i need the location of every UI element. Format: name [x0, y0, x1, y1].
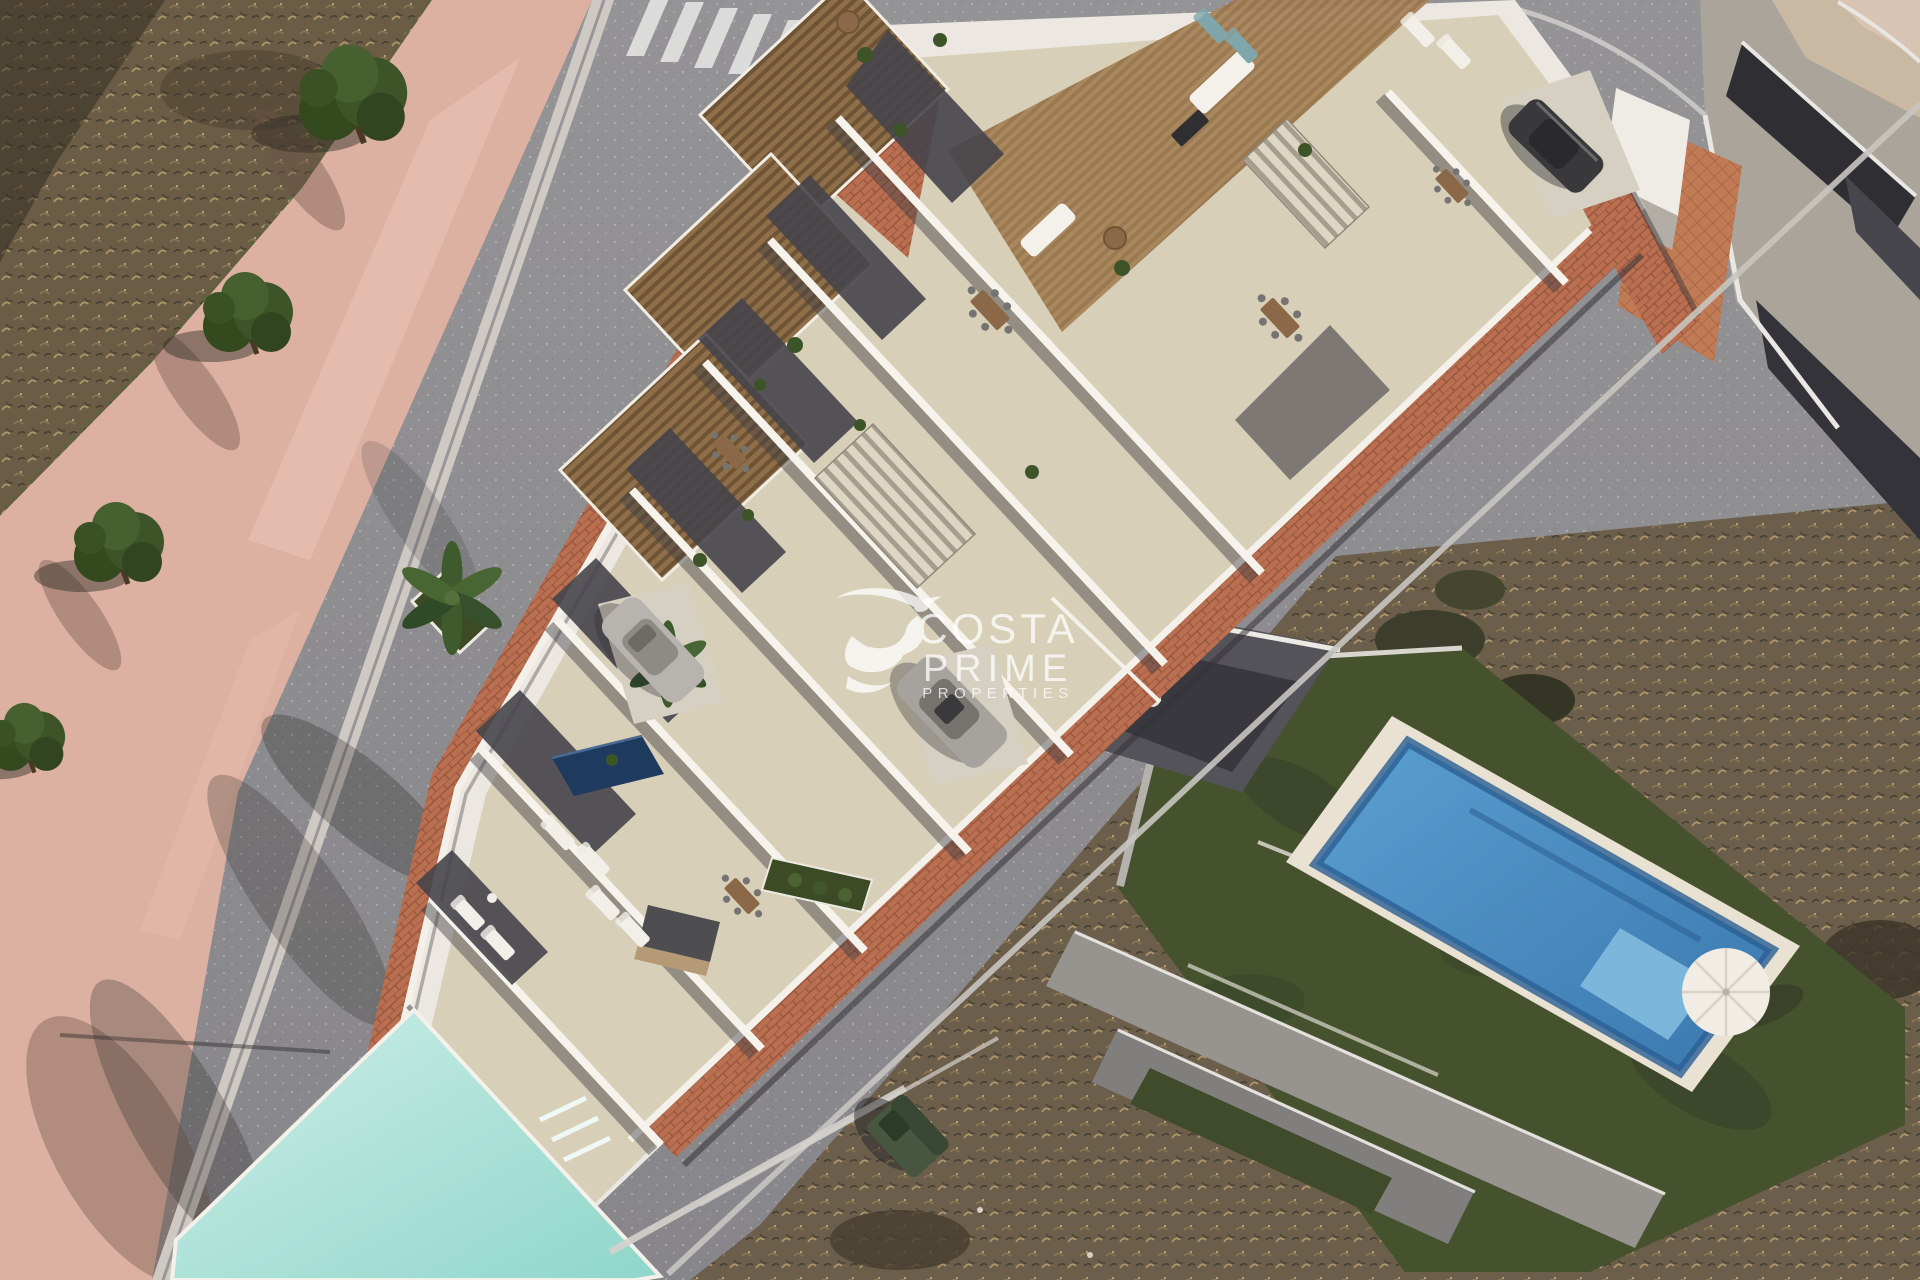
watermark-line2: PRIME: [923, 648, 1073, 690]
side-table: [487, 893, 497, 903]
scene-svg: COSTA PRIME PROPERTIES: [0, 0, 1920, 1280]
watermark-line3: PROPERTIES: [922, 685, 1073, 702]
aerial-render: COSTA PRIME PROPERTIES: [0, 0, 1920, 1280]
round-table: [1104, 227, 1126, 249]
watermark-line1: COSTA: [917, 605, 1079, 652]
